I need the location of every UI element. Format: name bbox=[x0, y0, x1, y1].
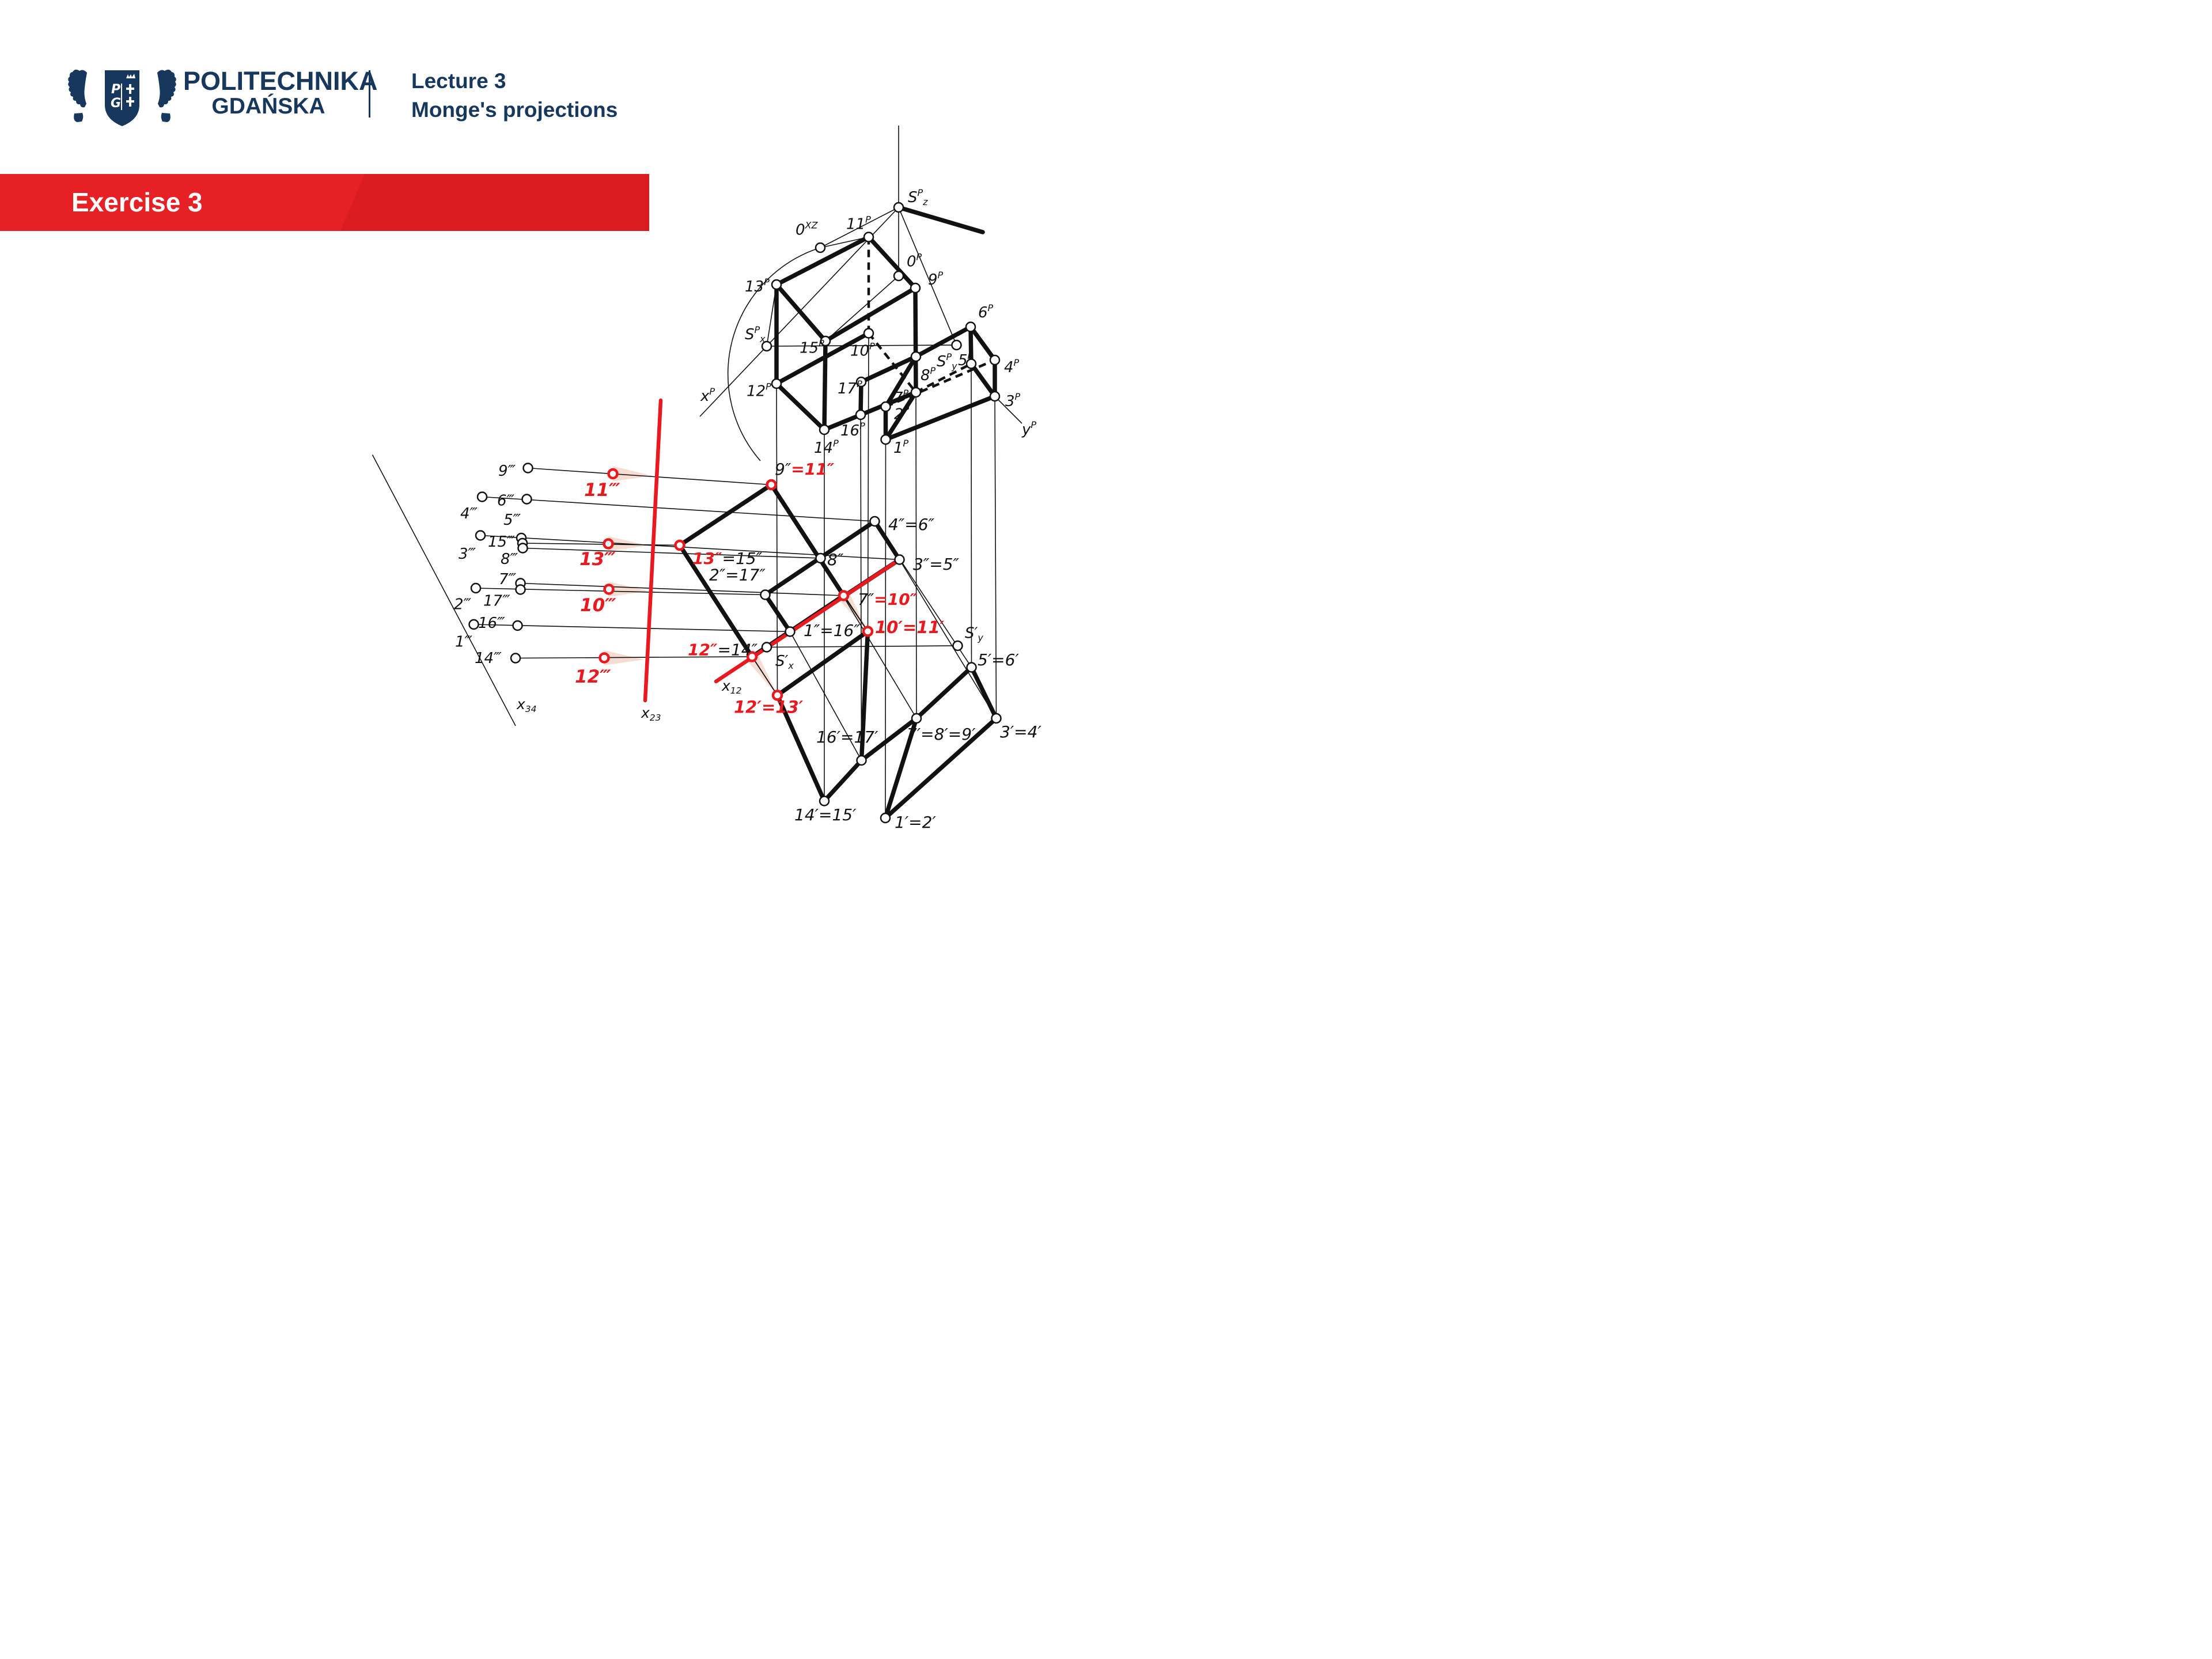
solid-edge bbox=[915, 288, 916, 392]
highlight-flare bbox=[608, 582, 649, 597]
solid-edge bbox=[824, 760, 862, 801]
label-1p: 1P bbox=[893, 438, 909, 457]
point-sz-pictorial bbox=[894, 203, 903, 212]
label-8-front: 8″ bbox=[827, 550, 844, 569]
label-8-side: 8‴ bbox=[501, 551, 518, 568]
point-3-4-top bbox=[992, 714, 1001, 723]
label-16-17-top: 16′=17′ bbox=[816, 728, 878, 747]
label-7-10-front: 7″=10″ bbox=[858, 590, 918, 609]
label-17p: 17P bbox=[838, 378, 862, 397]
label-sxp: SPx bbox=[745, 324, 766, 344]
label-9-side: 9‴ bbox=[498, 463, 516, 480]
label-4-side: 4‴ bbox=[460, 505, 478, 522]
solid-edge bbox=[777, 384, 824, 430]
point-2-pictorial bbox=[881, 402, 891, 411]
label-12-13-top-red: 12′=13′ bbox=[734, 698, 804, 717]
point-9-pictorial bbox=[911, 283, 920, 293]
construction-line bbox=[521, 584, 844, 596]
point-1-side bbox=[469, 620, 479, 629]
hidden-edge bbox=[869, 334, 916, 393]
label-0p: 0P bbox=[907, 252, 922, 271]
construction-line bbox=[522, 543, 680, 546]
point-7-8-9-top bbox=[912, 714, 921, 723]
label-12p: 12P bbox=[747, 381, 771, 400]
label-5-side: 5‴ bbox=[503, 512, 521, 529]
point-5-6-top bbox=[967, 663, 976, 672]
label-4p: 4P bbox=[1004, 357, 1020, 376]
label-13-side-red: 13‴ bbox=[579, 549, 616, 570]
label-7-8-9-top: 7′=8′=9′ bbox=[907, 725, 976, 744]
point-0xz-pictorial bbox=[816, 243, 825, 252]
point-7-10-front bbox=[839, 592, 848, 600]
point-2-17-front bbox=[761, 590, 770, 600]
point-16-17-top bbox=[857, 756, 866, 765]
label-10-side-red: 10‴ bbox=[580, 595, 616, 616]
label-xp: xP bbox=[700, 386, 715, 405]
label-10p: 10P bbox=[850, 341, 875, 360]
label-7-side: 7‴ bbox=[499, 571, 517, 588]
point-8-front bbox=[816, 554, 825, 563]
point-16-pictorial bbox=[856, 410, 865, 419]
label-15-side: 15‴ bbox=[488, 533, 515, 551]
label-1-side: 1‴ bbox=[455, 634, 473, 651]
point-14-15-top bbox=[820, 797, 829, 806]
label-16p: 16P bbox=[840, 421, 865, 440]
solid-edge bbox=[971, 327, 995, 361]
label-4-6-front: 4″=6″ bbox=[888, 515, 935, 534]
point-6-pictorial bbox=[966, 323, 975, 332]
solid-edge bbox=[771, 485, 844, 596]
point-7-pictorial bbox=[911, 388, 921, 397]
solid-edge bbox=[916, 668, 972, 719]
point-9-side bbox=[524, 464, 533, 473]
construction-line bbox=[523, 548, 821, 559]
point-12-pictorial bbox=[772, 379, 781, 388]
construction-line bbox=[528, 468, 772, 485]
label-8p: 8P bbox=[921, 365, 936, 384]
point-11-pictorial bbox=[864, 233, 873, 242]
label-sx-front: S′x bbox=[775, 653, 794, 671]
label-2-17-front: 2″=17″ bbox=[709, 566, 766, 585]
label-3-5-front: 3″=5″ bbox=[913, 555, 960, 574]
point-13-15-front bbox=[676, 541, 684, 550]
point-17-side bbox=[516, 585, 525, 594]
label-12-14-front: 12″=14″ bbox=[688, 641, 758, 660]
label-1-2-top: 1′=2′ bbox=[895, 813, 936, 829]
label-x34: x34 bbox=[516, 696, 537, 714]
slide: P G POLITECHNIKA GDAŃSKA Lecture 3 Monge… bbox=[0, 0, 1106, 829]
point-3-5-front bbox=[895, 555, 904, 565]
solid-edge bbox=[824, 341, 825, 430]
solid-edge bbox=[777, 285, 825, 341]
construction-line bbox=[373, 455, 516, 726]
point-0-pictorial bbox=[894, 271, 903, 281]
solid-edge bbox=[972, 668, 997, 719]
label-x23: x23 bbox=[641, 704, 661, 723]
label-17-side: 17‴ bbox=[483, 593, 510, 610]
label-14-side: 14‴ bbox=[475, 650, 502, 667]
point-sy-top bbox=[953, 641, 963, 650]
solid-edge bbox=[899, 207, 983, 232]
construction-line bbox=[752, 657, 778, 695]
construction-line bbox=[482, 497, 875, 522]
point-14-pictorial bbox=[820, 425, 829, 434]
label-10-11-top-red: 10′=11′ bbox=[875, 618, 945, 637]
point-10-side-red bbox=[605, 585, 613, 594]
point-1-pictorial bbox=[881, 435, 891, 444]
point-1-16-front bbox=[786, 627, 795, 637]
solid-edge bbox=[766, 595, 790, 632]
geometry-drawing: 0XZSPz11P0P13P9P6P15P10P8PSPy5P4P3P7P12P… bbox=[0, 0, 1106, 829]
solid-edge bbox=[680, 485, 771, 546]
solution-axis-red bbox=[645, 400, 661, 700]
label-3-side: 3‴ bbox=[459, 546, 476, 563]
label-14-15-top: 14′=15′ bbox=[794, 805, 857, 824]
point-4-side bbox=[478, 493, 487, 502]
solid-edge bbox=[971, 364, 995, 397]
point-8-side bbox=[518, 544, 528, 553]
label-14p: 14P bbox=[814, 438, 839, 457]
label-3-4-top: 3′=4′ bbox=[1000, 722, 1041, 741]
label-9-11-front: 9″=11″ bbox=[775, 460, 835, 479]
construction-line bbox=[825, 276, 899, 341]
label-6-side: 6‴ bbox=[497, 493, 515, 510]
point-13-pictorial bbox=[772, 280, 781, 289]
label-6p: 6P bbox=[978, 302, 994, 321]
construction-line bbox=[777, 384, 778, 695]
label-syp: SPy bbox=[937, 351, 957, 372]
label-11-side-red: 11‴ bbox=[584, 480, 620, 501]
label-9p: 9P bbox=[928, 270, 944, 289]
label-1-16-front: 1″=16″ bbox=[804, 621, 860, 640]
label-sy-top: S′y bbox=[965, 625, 983, 643]
point-8-pictorial bbox=[911, 352, 921, 361]
label-0xz: 0XZ bbox=[796, 220, 819, 239]
point-3-pictorial bbox=[990, 392, 999, 401]
point-12-side-red bbox=[600, 654, 609, 662]
label-13p: 13P bbox=[745, 276, 770, 296]
point-10-11-top bbox=[863, 627, 872, 636]
point-6-side bbox=[522, 495, 532, 504]
point-16-side bbox=[513, 621, 522, 630]
label-x12: x12 bbox=[721, 677, 742, 696]
construction-line bbox=[767, 646, 958, 647]
construction-line bbox=[971, 364, 972, 668]
point-sy-pictorial bbox=[952, 340, 961, 350]
label-12-side-red: 12‴ bbox=[575, 666, 611, 687]
point-3-side bbox=[476, 531, 485, 540]
point-2-side bbox=[471, 584, 480, 593]
point-13-side-red bbox=[604, 540, 613, 548]
point-10-pictorial bbox=[864, 329, 873, 338]
label-11p: 11P bbox=[846, 214, 871, 233]
label-2p: 2P bbox=[894, 404, 910, 423]
point-4-pictorial bbox=[990, 355, 999, 365]
construction-line bbox=[995, 396, 997, 718]
label-5-6-top: 5′=6′ bbox=[978, 650, 1019, 669]
label-2-side: 2‴ bbox=[454, 596, 472, 613]
point-1-2-top bbox=[881, 813, 890, 823]
label-16-side: 16‴ bbox=[478, 615, 505, 632]
label-3p: 3P bbox=[1005, 391, 1021, 410]
point-sx-front bbox=[762, 643, 771, 652]
point-11-side-red bbox=[609, 469, 618, 478]
point-9-11-front bbox=[767, 480, 776, 489]
label-15p: 15P bbox=[800, 338, 824, 357]
label-yp: yP bbox=[1021, 419, 1036, 438]
label-sz: SPz bbox=[908, 187, 928, 207]
point-14-side bbox=[511, 654, 520, 663]
point-4-6-front bbox=[870, 517, 880, 526]
